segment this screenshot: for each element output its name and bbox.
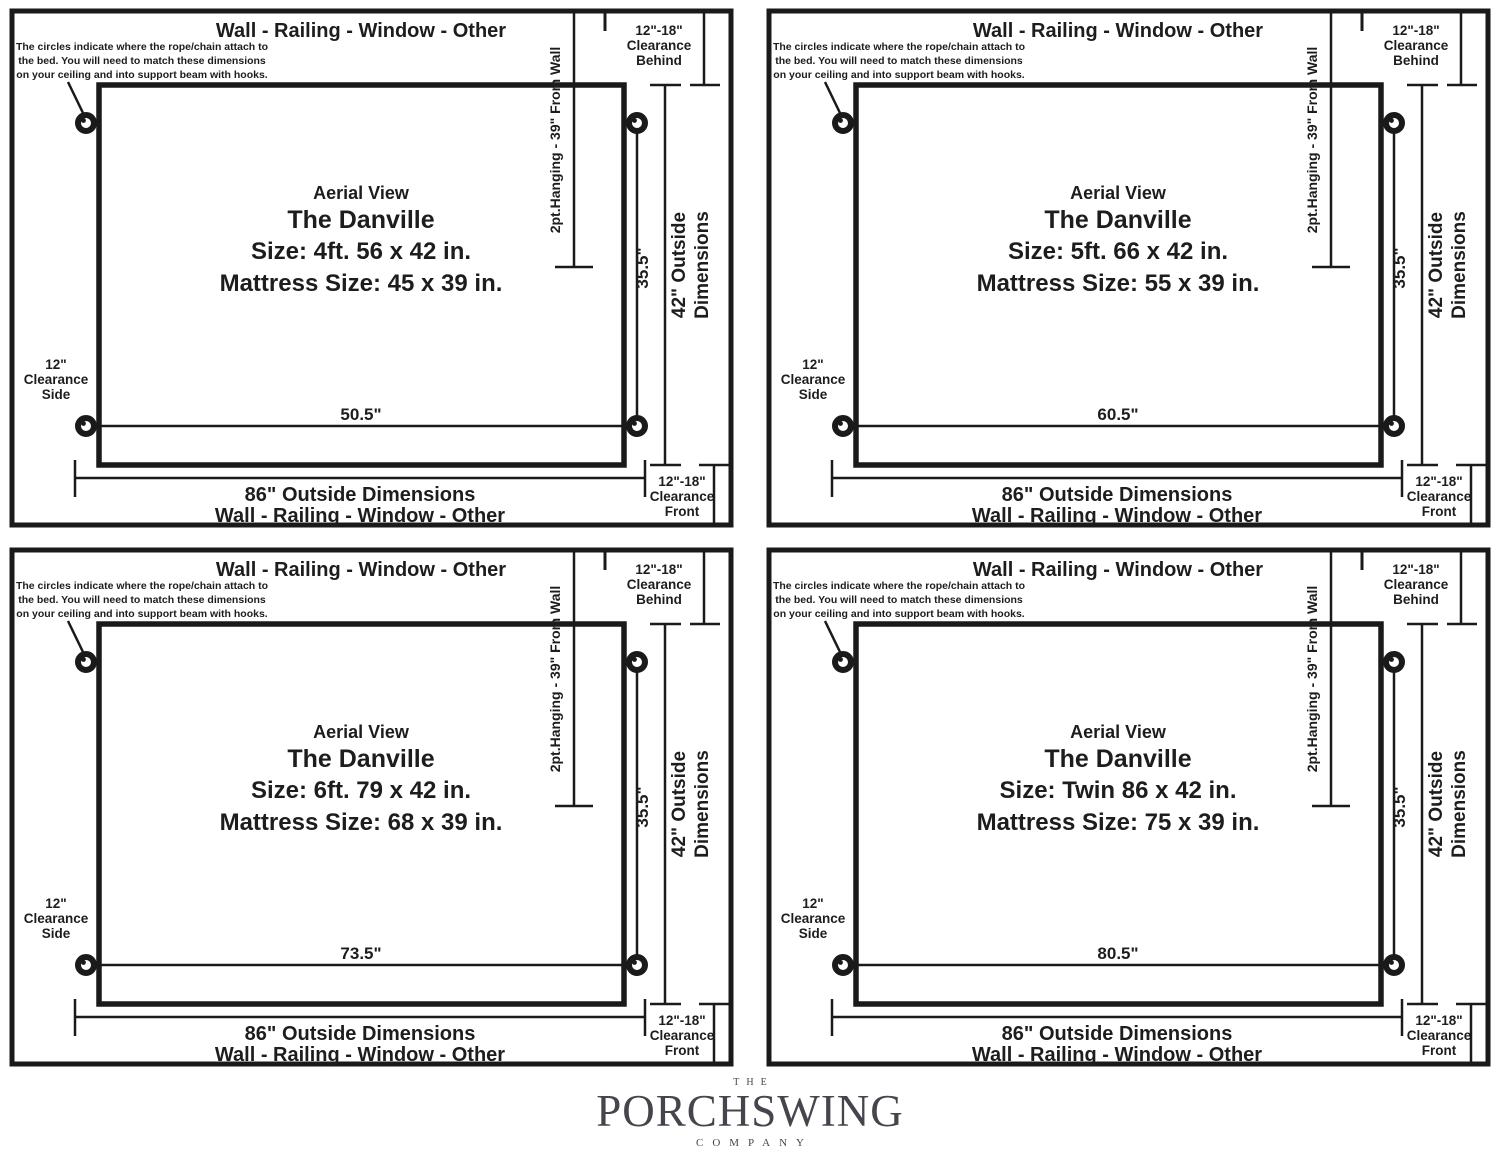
hanging-label: 2pt.Hanging - 39" From Wall: [1304, 47, 1320, 234]
outside-depth-label-2: Dimensions: [692, 750, 713, 858]
hanging-label: 2pt.Hanging - 39" From Wall: [1304, 586, 1320, 773]
attach-span-width-label: 60.5": [1097, 405, 1138, 424]
size-label: Size: Twin 86 x 42 in.: [1000, 777, 1237, 804]
clearance-behind-line-2: Clearance: [1384, 38, 1449, 53]
attach-ring-bottom-left: [78, 957, 94, 973]
note-line-2: the bed. You will need to match these di…: [775, 55, 1023, 67]
attach-ring-top-right: [1386, 115, 1402, 131]
clearance-behind-line-2: Clearance: [627, 577, 692, 592]
clearance-behind-line-1: 12"-18": [1392, 23, 1439, 38]
clearance-behind-line-3: Behind: [636, 592, 682, 607]
diagram-panel-6ft: Wall - Railing - Window - Other The circ…: [4, 542, 739, 1072]
attach-ring-bottom-left: [835, 418, 851, 434]
note-pointer-line: [825, 82, 840, 113]
attach-ring-top-right: [629, 654, 645, 670]
note-pointer-line: [68, 621, 83, 652]
attach-span-width-label: 80.5": [1097, 944, 1138, 963]
note-line-1: The circles indicate where the rope/chai…: [16, 580, 268, 592]
outside-depth-label-1: 42" Outside: [669, 751, 690, 857]
outside-depth-label-1: 42" Outside: [1426, 212, 1447, 318]
clearance-side-line-3: Side: [42, 387, 71, 402]
note-line-1: The circles indicate where the rope/chai…: [773, 41, 1025, 53]
attach-ring-bottom-right: [629, 418, 645, 434]
attach-ring-top-right: [1386, 654, 1402, 670]
clearance-behind-line-1: 12"-18": [635, 23, 682, 38]
outside-width-label: 86" Outside Dimensions: [1002, 484, 1233, 506]
clearance-side-line-1: 12": [45, 357, 66, 372]
clearance-behind-line-1: 12"-18": [1392, 562, 1439, 577]
note-pointer-line: [68, 82, 83, 113]
logo-name: PORCHSWING: [0, 1089, 1500, 1134]
clearance-side-line-2: Clearance: [24, 372, 89, 387]
outside-depth-label-2: Dimensions: [1449, 211, 1470, 319]
attach-ring-top-left: [835, 654, 851, 670]
outside-depth-label-1: 42" Outside: [1426, 751, 1447, 857]
clearance-front-line-2: Clearance: [1407, 1028, 1472, 1043]
diagram-panel-5ft: Wall - Railing - Window - Other The circ…: [761, 3, 1496, 533]
attach-span-width-label: 50.5": [340, 405, 381, 424]
top-wall-label: Wall - Railing - Window - Other: [216, 20, 506, 42]
mattress-size-label: Mattress Size: 68 x 39 in.: [220, 809, 503, 836]
outside-width-label: 86" Outside Dimensions: [245, 1023, 476, 1045]
top-wall-label: Wall - Railing - Window - Other: [973, 559, 1263, 581]
attach-span-depth-label: 35.5": [1390, 247, 1409, 288]
outside-depth-label-1: 42" Outside: [669, 212, 690, 318]
aerial-view-label: Aerial View: [1070, 183, 1167, 203]
panels-grid: Wall - Railing - Window - Other The circ…: [0, 0, 1500, 1072]
note-line-3: on your ceiling and into support beam wi…: [773, 608, 1025, 620]
size-label: Size: 6ft. 79 x 42 in.: [251, 777, 471, 804]
outside-width-label: 86" Outside Dimensions: [1002, 1023, 1233, 1045]
mattress-size-label: Mattress Size: 75 x 39 in.: [977, 809, 1260, 836]
diagram-panel-4ft: Wall - Railing - Window - Other The circ…: [4, 3, 739, 533]
note-line-2: the bed. You will need to match these di…: [775, 594, 1023, 606]
clearance-front-line-3: Front: [1422, 504, 1457, 519]
attach-ring-bottom-left: [78, 418, 94, 434]
clearance-front-line-3: Front: [665, 1043, 700, 1058]
attach-ring-top-left: [78, 115, 94, 131]
aerial-view-label: Aerial View: [313, 722, 410, 742]
clearance-side-line-3: Side: [799, 387, 828, 402]
model-name: The Danville: [1044, 206, 1191, 234]
clearance-side-line-2: Clearance: [781, 372, 846, 387]
attach-ring-bottom-right: [1386, 957, 1402, 973]
clearance-side-line-3: Side: [42, 926, 71, 941]
footer-logo: THE PORCHSWING COMPANY: [0, 1077, 1500, 1149]
clearance-behind-line-1: 12"-18": [635, 562, 682, 577]
attach-span-width-label: 73.5": [340, 944, 381, 963]
bottom-wall-label: Wall - Railing - Window - Other: [972, 505, 1262, 527]
clearance-front-line-1: 12"-18": [1415, 1013, 1462, 1028]
bottom-wall-label: Wall - Railing - Window - Other: [215, 505, 505, 527]
note-line-1: The circles indicate where the rope/chai…: [16, 41, 268, 53]
clearance-side-line-1: 12": [45, 896, 66, 911]
note-line-2: the bed. You will need to match these di…: [18, 594, 266, 606]
note-line-1: The circles indicate where the rope/chai…: [773, 580, 1025, 592]
size-label: Size: 5ft. 66 x 42 in.: [1008, 238, 1228, 265]
note-line-2: the bed. You will need to match these di…: [18, 55, 266, 67]
note-line-3: on your ceiling and into support beam wi…: [16, 69, 268, 81]
clearance-front-line-3: Front: [1422, 1043, 1457, 1058]
note-line-3: on your ceiling and into support beam wi…: [16, 608, 268, 620]
clearance-side-line-3: Side: [799, 926, 828, 941]
attach-ring-bottom-right: [1386, 418, 1402, 434]
outside-width-label: 86" Outside Dimensions: [245, 484, 476, 506]
attach-ring-bottom-right: [629, 957, 645, 973]
logo-company: COMPANY: [0, 1137, 1500, 1149]
outside-depth-label-2: Dimensions: [1449, 750, 1470, 858]
outside-depth-label-2: Dimensions: [692, 211, 713, 319]
clearance-front-line-3: Front: [665, 504, 700, 519]
clearance-front-line-2: Clearance: [650, 1028, 715, 1043]
clearance-behind-line-3: Behind: [1393, 592, 1439, 607]
mattress-size-label: Mattress Size: 45 x 39 in.: [220, 270, 503, 297]
diagram-panel-twin: Wall - Railing - Window - Other The circ…: [761, 542, 1496, 1072]
attach-span-depth-label: 35.5": [633, 786, 652, 827]
mattress-size-label: Mattress Size: 55 x 39 in.: [977, 270, 1260, 297]
attach-ring-bottom-left: [835, 957, 851, 973]
attach-ring-top-left: [835, 115, 851, 131]
clearance-behind-line-2: Clearance: [627, 38, 692, 53]
clearance-front-line-1: 12"-18": [658, 1013, 705, 1028]
size-label: Size: 4ft. 56 x 42 in.: [251, 238, 471, 265]
clearance-front-line-1: 12"-18": [658, 474, 705, 489]
clearance-behind-line-3: Behind: [1393, 53, 1439, 68]
hanging-label: 2pt.Hanging - 39" From Wall: [547, 47, 563, 234]
top-wall-label: Wall - Railing - Window - Other: [973, 20, 1263, 42]
clearance-side-line-1: 12": [802, 357, 823, 372]
attach-ring-top-left: [78, 654, 94, 670]
clearance-front-line-2: Clearance: [650, 489, 715, 504]
attach-span-depth-label: 35.5": [1390, 786, 1409, 827]
note-line-3: on your ceiling and into support beam wi…: [773, 69, 1025, 81]
aerial-view-label: Aerial View: [1070, 722, 1167, 742]
clearance-behind-line-3: Behind: [636, 53, 682, 68]
model-name: The Danville: [1044, 745, 1191, 773]
clearance-side-line-2: Clearance: [24, 911, 89, 926]
hanging-label: 2pt.Hanging - 39" From Wall: [547, 586, 563, 773]
clearance-front-line-1: 12"-18": [1415, 474, 1462, 489]
bottom-wall-label: Wall - Railing - Window - Other: [972, 1044, 1262, 1066]
note-pointer-line: [825, 621, 840, 652]
top-wall-label: Wall - Railing - Window - Other: [216, 559, 506, 581]
model-name: The Danville: [287, 206, 434, 234]
clearance-behind-line-2: Clearance: [1384, 577, 1449, 592]
clearance-side-line-2: Clearance: [781, 911, 846, 926]
clearance-front-line-2: Clearance: [1407, 489, 1472, 504]
attach-span-depth-label: 35.5": [633, 247, 652, 288]
bottom-wall-label: Wall - Railing - Window - Other: [215, 1044, 505, 1066]
clearance-side-line-1: 12": [802, 896, 823, 911]
aerial-view-label: Aerial View: [313, 183, 410, 203]
model-name: The Danville: [287, 745, 434, 773]
attach-ring-top-right: [629, 115, 645, 131]
